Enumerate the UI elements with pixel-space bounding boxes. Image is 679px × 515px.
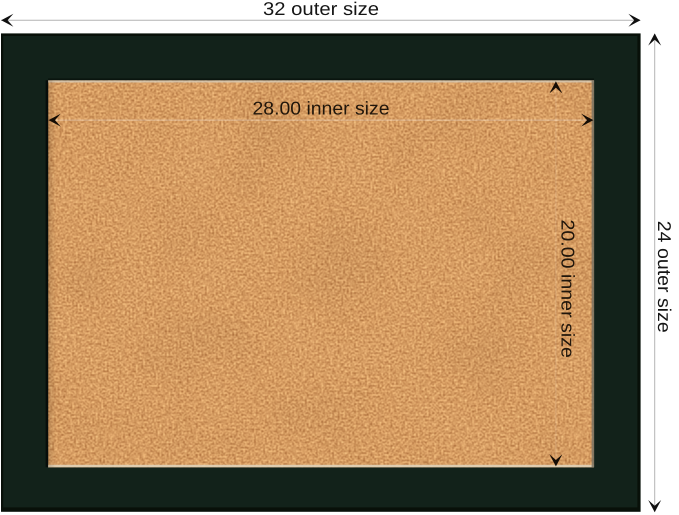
svg-text:24 outer size: 24 outer size xyxy=(654,221,675,333)
svg-text:28.00 inner size: 28.00 inner size xyxy=(253,98,390,119)
svg-text:32 outer size: 32 outer size xyxy=(263,0,379,19)
svg-text:20.00 inner size: 20.00 inner size xyxy=(558,219,579,358)
